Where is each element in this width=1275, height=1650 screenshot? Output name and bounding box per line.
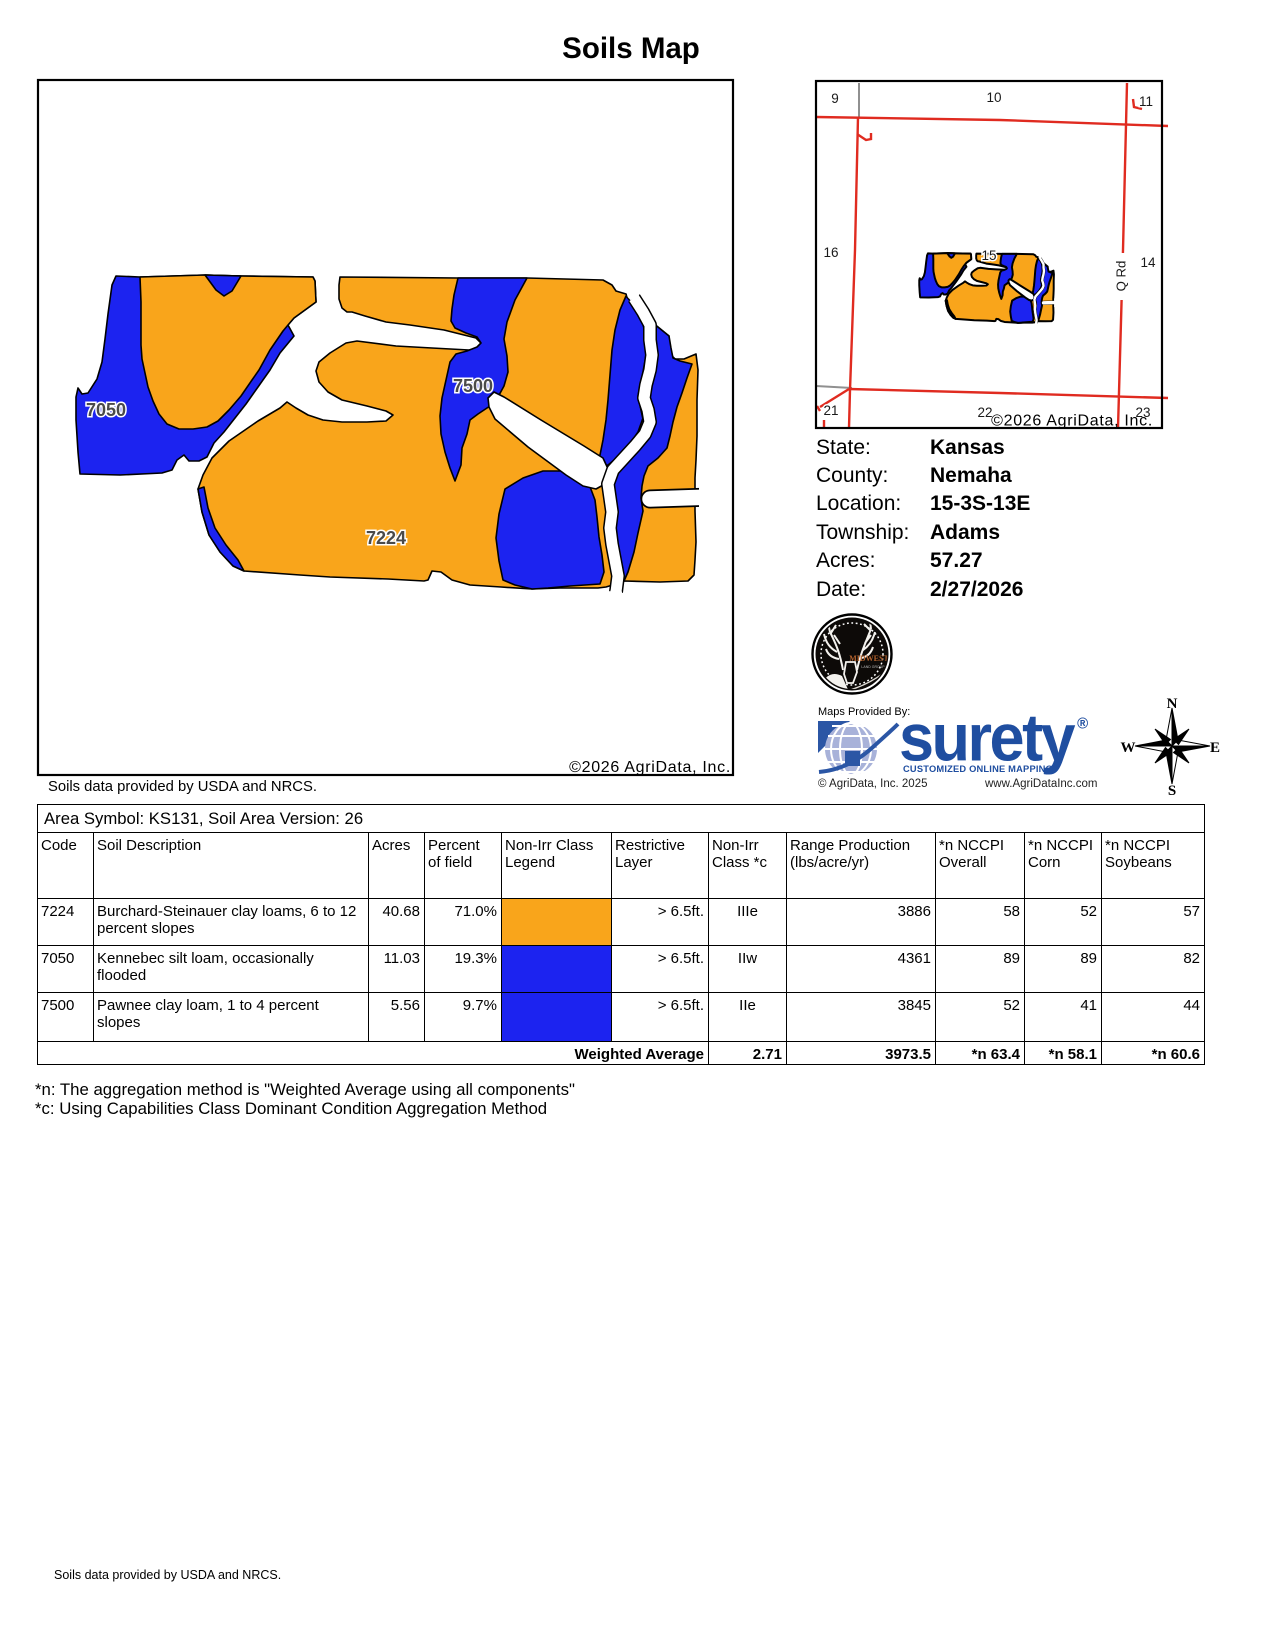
svg-text:7050: 7050: [86, 400, 126, 420]
svg-text:16: 16: [823, 245, 838, 260]
svg-text:E: E: [1210, 740, 1220, 756]
svg-text:MIDWEST: MIDWEST: [849, 654, 889, 663]
svg-text:11: 11: [1139, 94, 1153, 109]
svg-text:9: 9: [831, 91, 839, 106]
svg-text:14: 14: [1140, 255, 1156, 270]
svg-text:Q Rd: Q Rd: [1113, 261, 1128, 292]
svg-text:10: 10: [986, 90, 1001, 105]
svg-text:©2026 AgriData, Inc.: ©2026 AgriData, Inc.: [569, 759, 731, 776]
svg-text:7500: 7500: [453, 376, 493, 396]
svg-text:7224: 7224: [366, 528, 406, 548]
svg-text:N: N: [1167, 696, 1178, 712]
svg-text:S: S: [1168, 783, 1176, 799]
svg-text:15: 15: [981, 248, 996, 263]
svg-text:21: 21: [823, 403, 838, 418]
svg-text:LAND GROUP: LAND GROUP: [861, 665, 885, 669]
svg-text:W: W: [1121, 740, 1136, 756]
